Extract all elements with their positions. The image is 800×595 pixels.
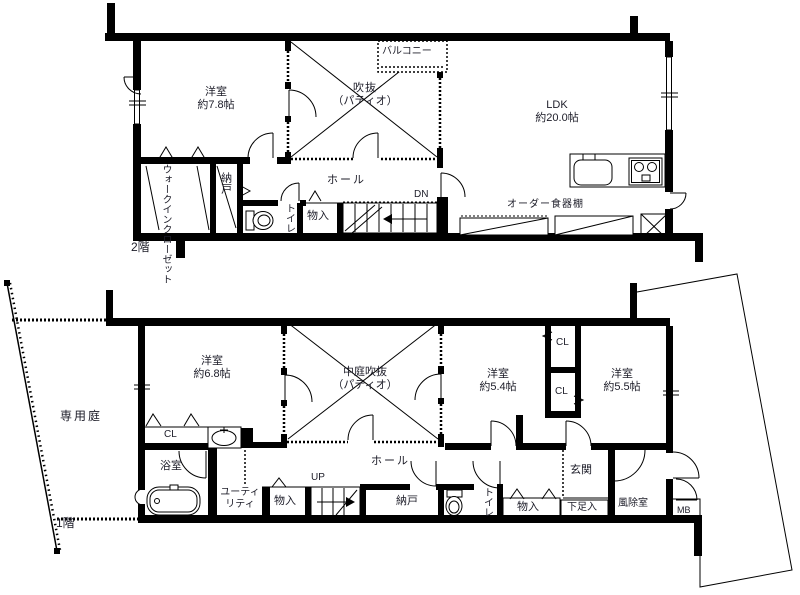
room-label-private-garden: 専用庭 [60,410,102,424]
label-closet-top: CL [556,337,569,349]
room-label-balcony: バルコニー [382,46,432,58]
room-label-bedroom-7-8: 洋室約7.8帖 [184,86,248,111]
room-label-shoe-storage: 下足入 [567,502,597,514]
bathtub-icon [147,485,200,515]
floor-label-2f: 2階 [131,241,150,255]
toilet-icon-1f [446,490,462,516]
room-label-mono-2f: 物入 [307,210,329,223]
room-label-void-patio-2f: 吹抜（パティオ） [325,82,405,107]
label-stairs-dn: DN [414,189,428,201]
room-label-mono-right-1f: 物入 [517,501,539,514]
label-meter-box: MB [677,505,691,515]
room-label-nando-1f: 納戸 [396,495,418,508]
kitchen-counter [570,154,665,187]
label-closet-mid: CL [555,386,568,398]
room-label-hall-2f: ホール [327,174,366,187]
room-label-bedroom-5-5: 洋室約5.5帖 [591,368,653,393]
room-label-nando-2f: 納戸 [219,172,232,206]
room-label-walkin-closet: ウォークインクローゼット [159,164,172,236]
room-label-mono-left-1f: 物入 [274,495,296,508]
room-label-bedroom-6-8: 洋室約6.8帖 [181,355,243,380]
room-label-toilet-2f: トイレ [283,203,295,237]
room-label-windbreak: 風除室 [618,498,648,510]
room-label-entrance: 玄関 [570,464,592,477]
room-label-toilet-1f: トイレ [481,487,493,521]
washbasin-icon [208,427,241,448]
label-order-cupboard: オーダー食器棚 [507,199,584,211]
floorplan-page: 洋室約7.8帖 吹抜（パティオ） バルコニー LDK約20.0帖 オーダー食器棚… [0,0,800,595]
label-closet-left: CL [164,429,177,441]
stairs-up-icon [311,487,360,517]
room-label-void-patio-1f: 中庭吹抜（パティオ） [325,366,405,391]
room-label-hall-1f: ホール [371,455,410,468]
label-stairs-up: UP [311,472,325,484]
cupboard-units [460,216,633,235]
room-label-utility: ユーティリティ [215,487,265,510]
first-floor-walls [106,283,702,556]
stove-icon [629,158,662,185]
room-label-bath: 浴室 [160,460,182,473]
floor-label-1f: 1階 [56,517,75,531]
toilet-icon-2f [246,211,273,230]
stairs-down-icon [343,203,437,233]
room-label-bedroom-5-4: 洋室約5.4帖 [467,368,529,393]
room-label-ldk: LDK約20.0帖 [522,99,592,124]
